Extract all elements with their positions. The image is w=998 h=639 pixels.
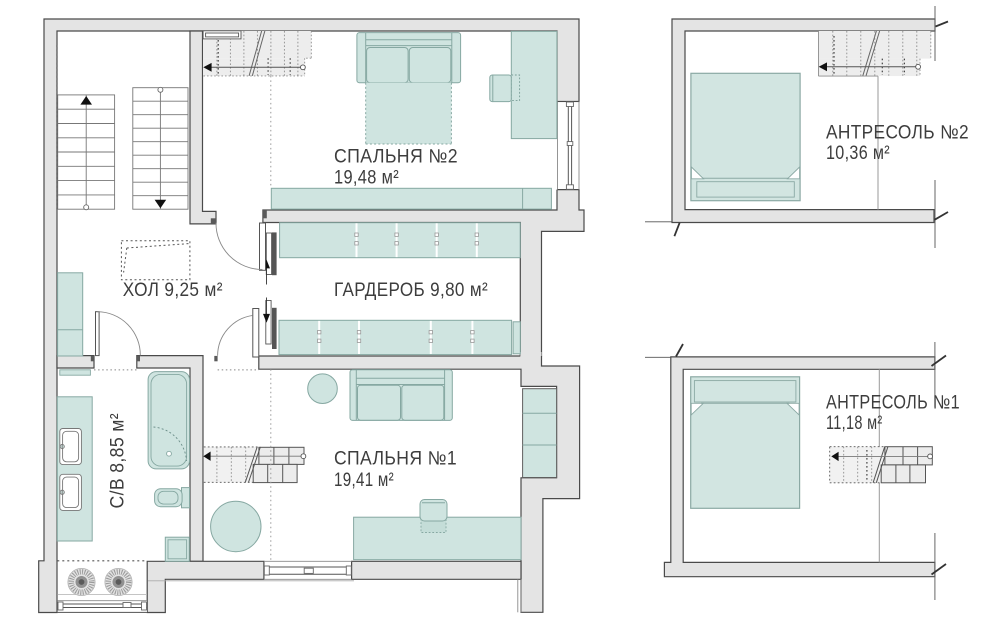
svg-text:СПАЛЬНЯ №2: СПАЛЬНЯ №2: [334, 147, 458, 168]
svg-text:10,36 м²: 10,36 м²: [826, 143, 890, 164]
svg-text:С/В 8,85 м²: С/В 8,85 м²: [108, 413, 129, 509]
svg-text:АНТРЕСОЛЬ №2: АНТРЕСОЛЬ №2: [826, 122, 969, 143]
svg-text:19,41 м²: 19,41 м²: [334, 470, 394, 491]
svg-text:19,48 м²: 19,48 м²: [334, 168, 399, 189]
svg-text:ХОЛ 9,25 м²: ХОЛ 9,25 м²: [123, 280, 223, 301]
svg-text:СПАЛЬНЯ №1: СПАЛЬНЯ №1: [334, 449, 457, 470]
svg-text:АНТРЕСОЛЬ №1: АНТРЕСОЛЬ №1: [826, 393, 960, 414]
svg-text:ГАРДЕРОБ 9,80 м²: ГАРДЕРОБ 9,80 м²: [334, 280, 488, 301]
svg-text:11,18 м²: 11,18 м²: [826, 413, 883, 434]
